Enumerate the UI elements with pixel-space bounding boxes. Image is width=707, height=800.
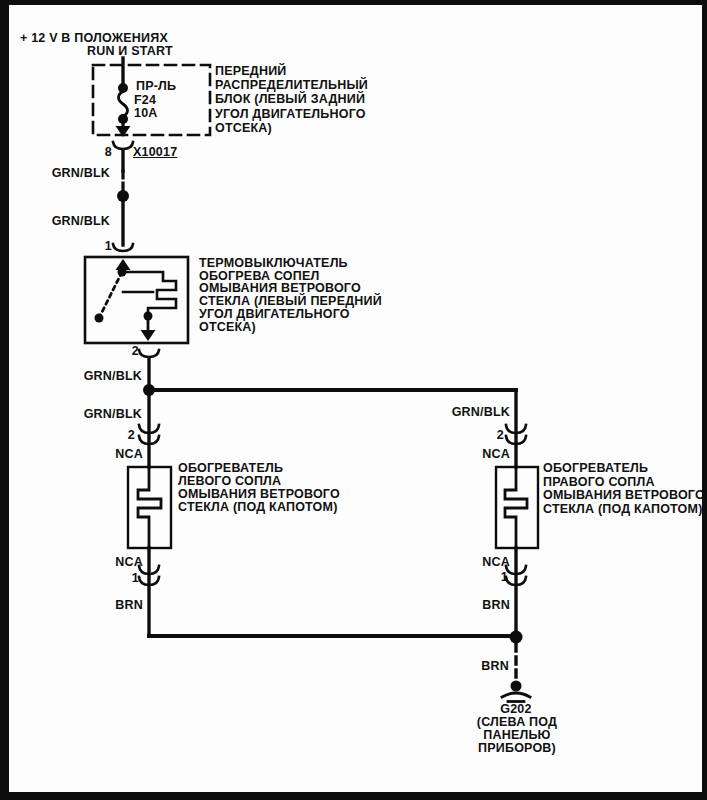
power-source-label-line2: RUN И START bbox=[87, 45, 173, 58]
connector-x10017-id: X10017 bbox=[133, 146, 177, 159]
wire-color-grnblk-1: GRN/BLK bbox=[40, 167, 110, 180]
wire-color-grnblk-3: GRN/BLK bbox=[72, 370, 142, 383]
wire-color-grnblk-5: GRN/BLK bbox=[440, 406, 510, 419]
left-heater-pin-2-label: 2 bbox=[105, 429, 135, 442]
wiring-diagram-page: + 12 V В ПОЛОЖЕНИЯХ RUN И START ПР-ЛЬ F2… bbox=[0, 0, 707, 800]
wire-color-brn-right: BRN bbox=[470, 599, 510, 612]
thermal-switch-pin-2-label: 2 bbox=[109, 345, 139, 358]
ground-icon bbox=[502, 681, 530, 702]
wire-color-brn-left: BRN bbox=[103, 599, 143, 612]
ground-location-label: (СЛЕВА ПОД ПАНЕЛЬЮ ПРИБОРОВ) bbox=[447, 716, 587, 755]
left-heater-pin-1-label: 1 bbox=[109, 572, 139, 585]
fuse-symbol bbox=[116, 83, 131, 137]
fuse-rating-label: 10A bbox=[134, 107, 158, 120]
fuse-name-label: ПР-ЛЬ bbox=[136, 80, 176, 93]
wire-color-grnblk-2: GRN/BLK bbox=[40, 215, 110, 228]
left-heater-label: ОБОГРЕВАТЕЛЬ ЛЕВОГО СОПЛА ОМЫВАНИЯ ВЕТРО… bbox=[178, 462, 340, 514]
right-heater-label: ОБОГРЕВАТЕЛЬ ПРАВОГО СОПЛА ОМЫВАНИЯ ВЕТР… bbox=[543, 462, 705, 516]
junction-dot-3 bbox=[510, 631, 523, 644]
wire-color-nca-right-bottom: NCA bbox=[470, 556, 510, 569]
thermal-switch-symbol bbox=[95, 259, 177, 341]
right-heater-pin-2-label: 2 bbox=[474, 429, 504, 442]
wire-color-nca-left-top: NCA bbox=[103, 448, 143, 461]
thermal-switch-pin-1-label: 1 bbox=[82, 240, 112, 253]
connector-pin-8-label: 8 bbox=[82, 146, 112, 159]
fuse-block-label: ПЕРЕДНИЙ РАСПРЕДЕЛИТЕЛЬНЫЙ БЛОК (ЛЕВЫЙ З… bbox=[215, 64, 368, 135]
wire-color-nca-right-top: NCA bbox=[470, 448, 510, 461]
left-heater-element bbox=[138, 467, 161, 548]
wire-color-brn-ground: BRN bbox=[469, 660, 509, 673]
right-heater-pin-1-label: 1 bbox=[478, 571, 508, 584]
wire-color-grnblk-4: GRN/BLK bbox=[72, 408, 142, 421]
wire-color-nca-left-bottom: NCA bbox=[103, 556, 143, 569]
right-heater-element bbox=[505, 467, 527, 548]
connector-x10017-symbol bbox=[113, 142, 133, 171]
thermal-switch-label: ТЕРМОВЫКЛЮЧАТЕЛЬ ОБОГРЕВА СОПЕЛ ОМЫВАНИЯ… bbox=[199, 257, 382, 333]
